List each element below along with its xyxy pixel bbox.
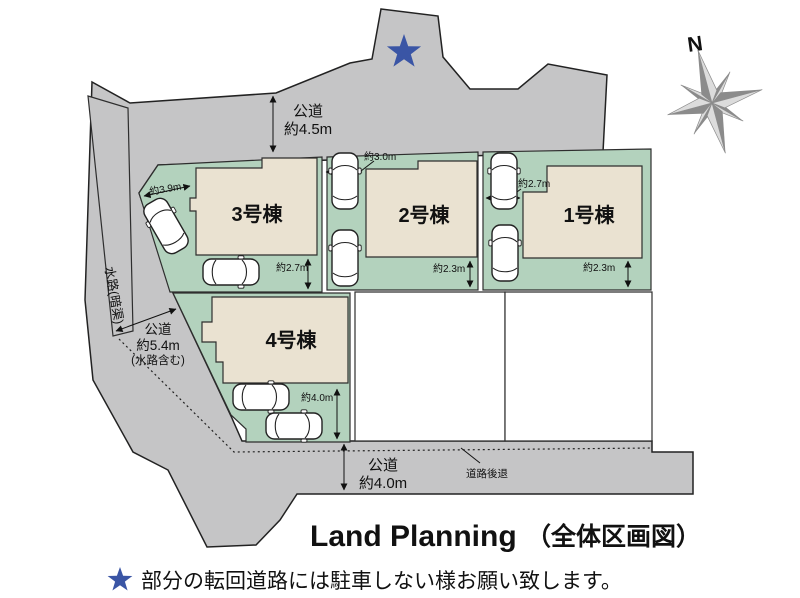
building-label-4: 4号棟	[265, 328, 317, 352]
car-icon	[488, 153, 520, 209]
caption-text: 部分の転回道路には駐車しない様お願い致します。	[141, 570, 622, 593]
car-icon	[329, 230, 361, 286]
car-icon	[203, 256, 259, 288]
dim-label-unit4-side: 約4.0m	[301, 391, 333, 404]
page-title-jp: （全体区画図）	[526, 522, 701, 551]
road-top-name: 公道	[293, 103, 323, 120]
lot-white-right	[505, 292, 652, 441]
road-left-note: (水路含む)	[131, 353, 185, 367]
compass-rose	[653, 36, 775, 165]
car-icon	[329, 153, 361, 209]
road-bottom-name: 公道	[368, 457, 398, 474]
car-icon	[266, 410, 322, 442]
dim-label-unit3-side: 約2.7m	[276, 261, 308, 274]
road-left-name: 公道	[145, 322, 172, 337]
site-plan: 水路(暗渠) 3号棟 2号棟 1号棟 4号棟 約3.9m 約3.0m 約2.7m…	[0, 0, 800, 598]
plan-svg: 水路(暗渠) 3号棟 2号棟 1号棟 4号棟 約3.9m 約3.0m 約2.7m…	[0, 0, 800, 598]
building-label-2: 2号棟	[398, 203, 450, 227]
dim-label-unit2-side: 約2.3m	[433, 262, 465, 275]
caption-star-icon	[108, 567, 133, 591]
north-label: N	[686, 32, 704, 57]
car-icon	[233, 381, 289, 413]
building-label-1: 1号棟	[563, 203, 615, 227]
car-icon	[489, 225, 521, 281]
dim-label-unit1-side: 約2.3m	[583, 261, 615, 274]
road-top-width: 約4.5m	[284, 121, 332, 138]
setback-label: 道路後退	[466, 467, 508, 480]
road-left-width: 約5.4m	[136, 338, 180, 353]
dim-label-unit2-front: 約3.0m	[364, 150, 396, 163]
lot-white-left	[355, 292, 505, 441]
dim-label-unit1-front: 約2.7m	[518, 177, 550, 190]
page-title-en: Land Planning	[310, 520, 517, 553]
building-label-3: 3号棟	[231, 202, 283, 226]
road-bottom-width: 約4.0m	[359, 475, 407, 492]
